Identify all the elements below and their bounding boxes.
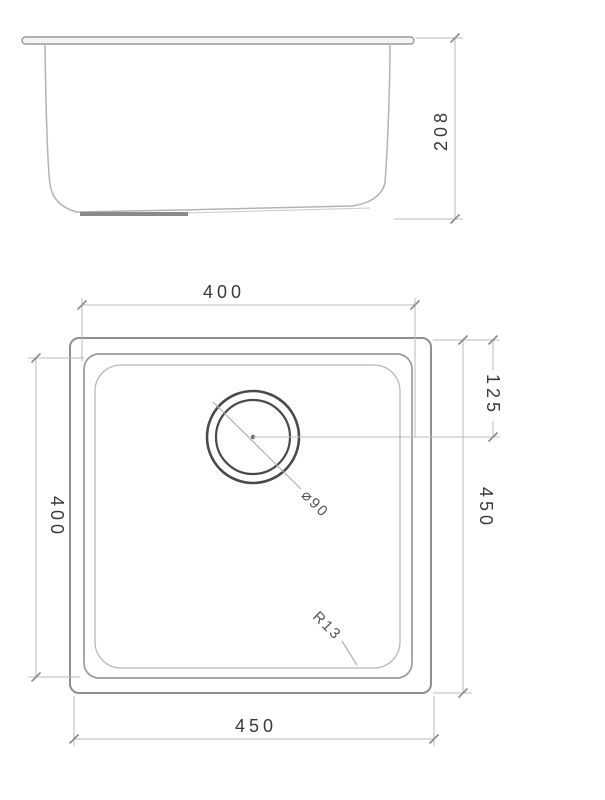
plan-view [28, 298, 500, 746]
rim-profile [22, 37, 414, 44]
rim-inner-edge [84, 354, 412, 678]
dim-label-top-width: 400 [203, 283, 245, 301]
basin-profile [45, 45, 390, 212]
bowl-radius-edge [95, 365, 400, 668]
dim-label-right-height: 450 [477, 487, 495, 529]
drawing-linework [0, 0, 605, 800]
dim-208 [394, 34, 463, 224]
dim-label-drain-offset: 125 [484, 374, 502, 416]
radius-leader-line [342, 641, 357, 665]
technical-drawing-sink: 208 400 400 450 125 450 ⌀90 R13 [0, 0, 605, 800]
dim-label-side-height: 208 [432, 109, 450, 151]
dim-top-400 [78, 298, 420, 437]
dim-label-left-depth: 400 [48, 496, 66, 538]
side-view [22, 34, 463, 224]
dim-label-bottom-width: 450 [235, 717, 277, 735]
